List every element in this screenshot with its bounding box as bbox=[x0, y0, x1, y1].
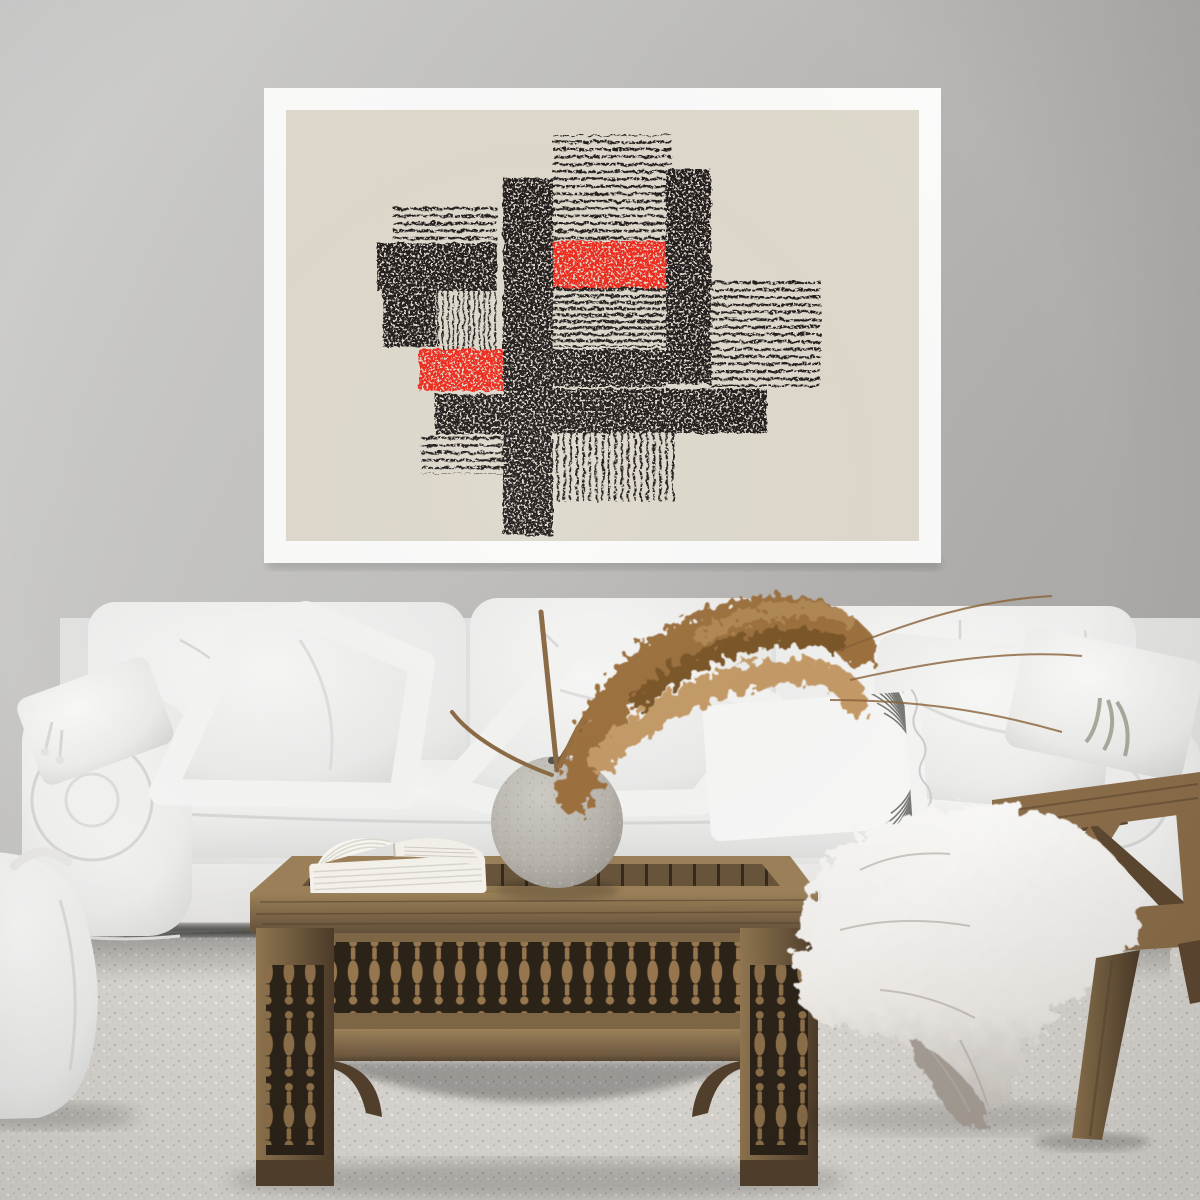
lighting-vignette bbox=[0, 0, 1200, 1200]
scene-canvas bbox=[0, 0, 1200, 1200]
living-room-photo bbox=[0, 0, 1200, 1200]
